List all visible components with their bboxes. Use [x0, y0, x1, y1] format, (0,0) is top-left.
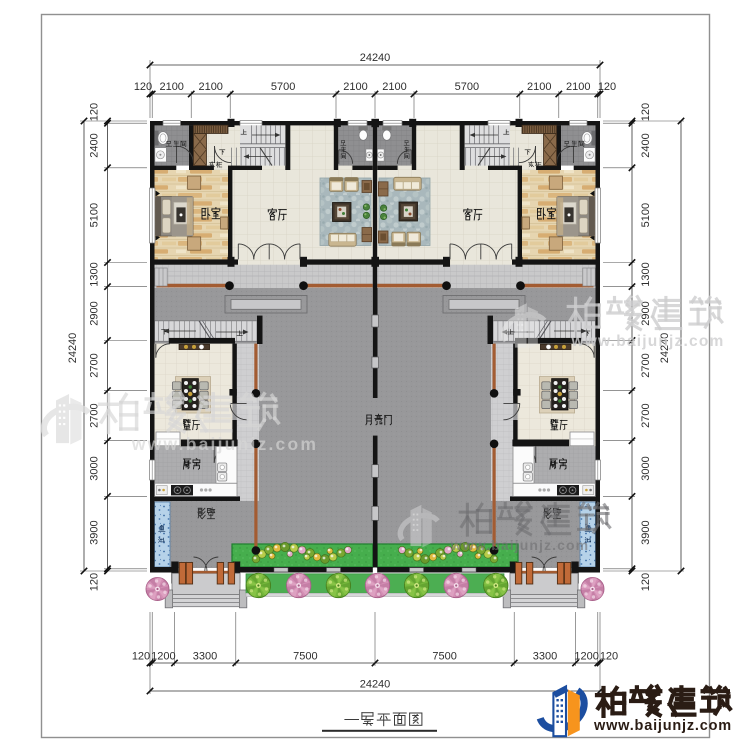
svg-text:2100: 2100	[566, 81, 590, 93]
svg-text:3900: 3900	[89, 520, 101, 544]
svg-text:7500: 7500	[432, 651, 456, 663]
svg-text:www.baijunjz.com: www.baijunjz.com	[450, 537, 589, 553]
svg-text:120: 120	[640, 103, 652, 121]
svg-text:3000: 3000	[640, 456, 652, 480]
svg-text:7500: 7500	[293, 651, 317, 663]
svg-text:www.baijunjz.com: www.baijunjz.com	[593, 718, 732, 734]
svg-text:120: 120	[89, 573, 101, 591]
svg-text:120: 120	[89, 103, 101, 121]
svg-text:120: 120	[600, 651, 618, 663]
svg-text:120: 120	[132, 651, 150, 663]
svg-text:24240: 24240	[360, 679, 391, 691]
svg-text:3000: 3000	[89, 456, 101, 480]
svg-text:24240: 24240	[67, 333, 79, 364]
svg-text:2100: 2100	[343, 81, 367, 93]
svg-text:5700: 5700	[455, 81, 479, 93]
svg-text:1300: 1300	[640, 262, 652, 286]
svg-text:2900: 2900	[89, 301, 101, 325]
svg-text:www.baijunjz.com: www.baijunjz.com	[131, 434, 318, 454]
svg-text:2100: 2100	[159, 81, 183, 93]
svg-text:24240: 24240	[360, 52, 391, 64]
svg-text:3900: 3900	[640, 520, 652, 544]
svg-text:3300: 3300	[533, 651, 557, 663]
svg-text:5700: 5700	[271, 81, 295, 93]
svg-text:120: 120	[640, 573, 652, 591]
svg-text:1200: 1200	[151, 651, 175, 663]
svg-text:2100: 2100	[198, 81, 222, 93]
svg-text:5100: 5100	[640, 203, 652, 227]
svg-text:120: 120	[598, 81, 616, 93]
svg-text:120: 120	[134, 81, 152, 93]
svg-text:2400: 2400	[89, 133, 101, 157]
svg-text:2100: 2100	[382, 81, 406, 93]
svg-text:2700: 2700	[89, 403, 101, 427]
svg-text:2400: 2400	[640, 133, 652, 157]
svg-text:2700: 2700	[89, 353, 101, 377]
svg-text:2700: 2700	[640, 403, 652, 427]
svg-text:5100: 5100	[89, 203, 101, 227]
svg-text:www.baijunjz.com: www.baijunjz.com	[571, 333, 725, 350]
svg-text:2100: 2100	[527, 81, 551, 93]
svg-text:2700: 2700	[640, 353, 652, 377]
svg-text:3300: 3300	[193, 651, 217, 663]
svg-text:1200: 1200	[574, 651, 598, 663]
svg-text:1300: 1300	[89, 262, 101, 286]
